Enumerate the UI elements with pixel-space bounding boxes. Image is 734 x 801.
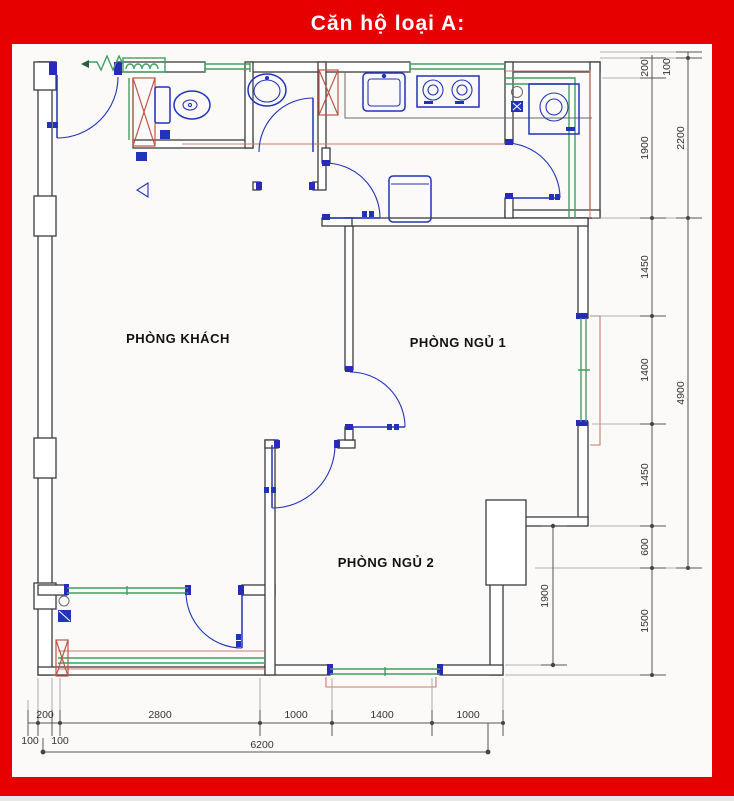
dim-label: 4900 — [675, 381, 687, 405]
dim-label-total: 6200 — [250, 739, 274, 751]
dim-label: 600 — [639, 538, 651, 556]
outlet-icon — [136, 152, 147, 161]
dim-label: 1900 — [539, 584, 551, 608]
page-title: Căn hộ loại A: — [311, 12, 465, 35]
dim-label: 1400 — [639, 358, 651, 382]
room-label-bedroom1: PHÒNG NGỦ 1 — [410, 335, 507, 350]
room-label-bedroom2: PHÒNG NGỦ 2 — [338, 555, 435, 570]
dim-label: 100 — [51, 735, 69, 747]
dim-label: 1000 — [284, 709, 308, 721]
dim-label: 1900 — [639, 136, 651, 160]
dim-label: 2200 — [675, 126, 687, 150]
dim-label: 1450 — [639, 463, 651, 487]
dim-label: 100 — [661, 58, 673, 76]
dim-label: 200 — [36, 709, 54, 721]
outlet-icon — [160, 130, 170, 139]
floor-plan-page: Căn hộ loại A: — [0, 0, 734, 796]
dim-label: 2800 — [148, 709, 172, 721]
dim-label: 1000 — [456, 709, 480, 721]
room-label-living: PHÒNG KHÁCH — [126, 331, 230, 346]
floor-plan-svg: Căn hộ loại A: — [0, 0, 734, 796]
dim-label: 1450 — [639, 255, 651, 279]
dim-label: 100 — [21, 735, 39, 747]
dim-label: 1400 — [370, 709, 394, 721]
dim-label: 200 — [639, 59, 651, 77]
dim-label: 1500 — [639, 609, 651, 633]
